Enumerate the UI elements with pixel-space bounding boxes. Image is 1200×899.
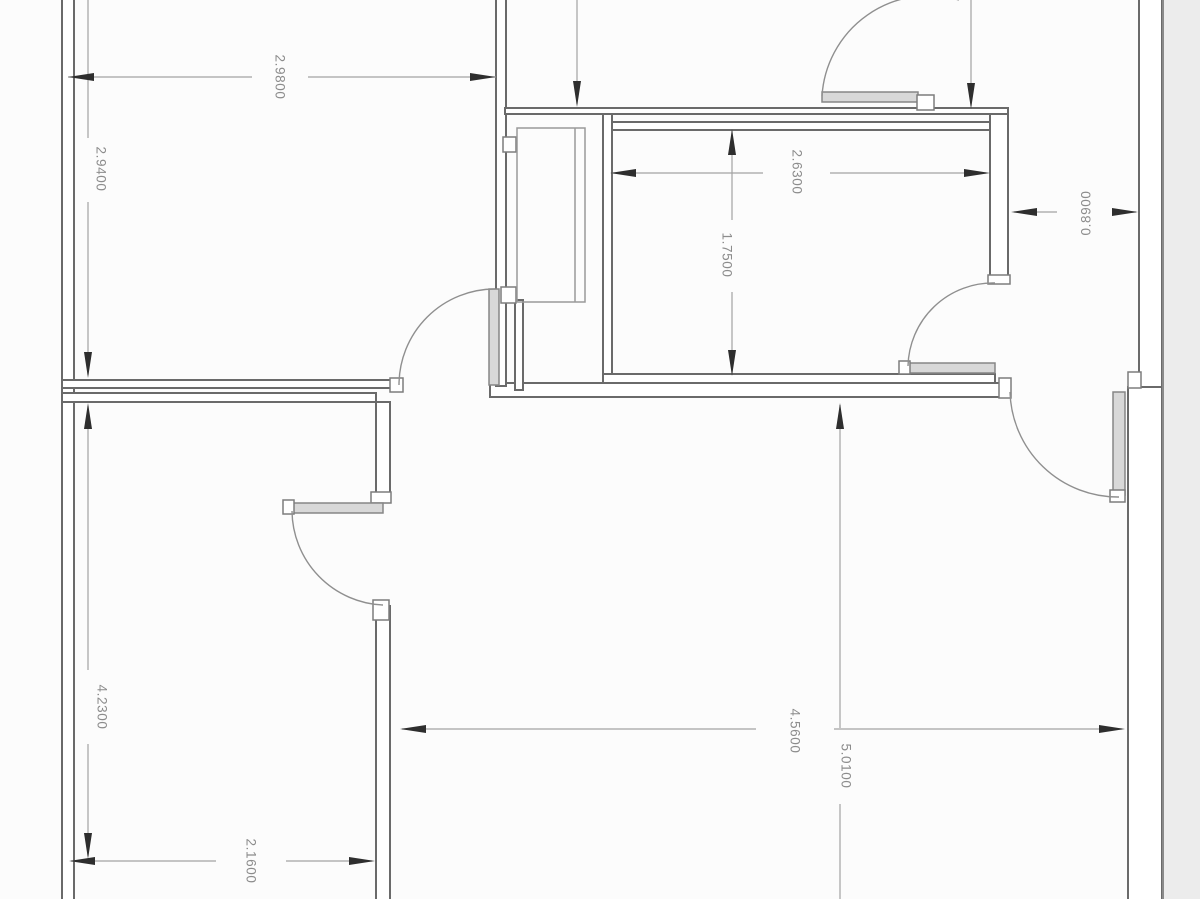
arrowhead	[967, 83, 975, 109]
jamb	[371, 492, 391, 503]
arrowhead	[610, 169, 636, 177]
arrowhead	[573, 81, 581, 107]
left-vertical-wall-upper	[376, 402, 390, 498]
dimension-label-bedroom-height: 1.7500	[720, 233, 735, 278]
jamb	[1128, 372, 1141, 388]
arrowhead	[1011, 208, 1037, 216]
door-lower-left-room	[283, 500, 383, 605]
dimension-label-living-width: 4.5600	[788, 709, 803, 754]
door-bedroom	[899, 283, 995, 374]
arrowhead	[349, 857, 375, 865]
door-swing-arc	[908, 283, 995, 366]
door-swing-arc	[1010, 392, 1119, 497]
door-tip-jamb	[1110, 490, 1125, 502]
door-swing-arc	[399, 289, 495, 385]
dimension-label-living-height: 5.0100	[839, 744, 854, 789]
jamb	[999, 378, 1011, 398]
door-leaf	[822, 92, 918, 102]
door-leaf	[908, 363, 995, 373]
bedroom-left-wall	[603, 114, 612, 383]
upper-room-bottom-wall	[62, 380, 397, 388]
jamb	[390, 378, 403, 392]
door-leaf	[1113, 392, 1125, 495]
lower-room-top-wall	[62, 393, 376, 402]
arrowhead	[470, 73, 496, 81]
floor-plan-drawing	[0, 0, 1200, 899]
door-leaf	[489, 289, 499, 385]
jamb	[501, 287, 516, 303]
closet-fixture	[517, 128, 585, 302]
arrowhead	[84, 833, 92, 859]
left-vertical-wall-lower	[376, 606, 390, 899]
arrowhead	[728, 350, 736, 376]
door-swing-arc	[822, 0, 959, 96]
page-margin	[1162, 0, 1200, 899]
dimension-label-bottom-width: 2.1600	[244, 839, 259, 884]
door-upper-left-room	[399, 289, 499, 385]
door-hinge-jamb	[917, 95, 934, 110]
dimension-label-bedroom-width: 2.6300	[790, 150, 805, 195]
door-swing-arc	[292, 511, 383, 605]
arrowhead	[84, 403, 92, 429]
dimension-label-top-width: 2.9800	[273, 55, 288, 100]
left-outer-wall	[62, 0, 74, 899]
closet-side-wall	[515, 300, 523, 390]
arrowhead	[964, 169, 990, 177]
arrowhead	[1112, 208, 1138, 216]
floor-plan-canvas: 2.9800 2.9400 2.6300 1.7500 0.8900 4.230…	[0, 0, 1200, 899]
arrowhead	[728, 129, 736, 155]
arrowhead	[84, 352, 92, 378]
jamb	[503, 137, 516, 152]
door-hall-right	[1010, 392, 1125, 502]
door-leaf	[287, 503, 383, 513]
dimension-label-right-offset: 0.8900	[1079, 191, 1094, 236]
door-top-right	[822, 0, 959, 110]
right-outer-wall-lower	[1128, 387, 1162, 899]
arrowhead	[400, 725, 426, 733]
bedroom-bottom-wall	[603, 374, 995, 383]
jamb	[373, 600, 389, 620]
interior-walls	[62, 0, 1010, 899]
arrowhead	[836, 403, 844, 429]
bedroom-top-inner-wall	[603, 122, 995, 130]
arrowhead	[1099, 725, 1125, 733]
hall-top-wall	[490, 383, 1010, 397]
dimension-label-lower-left-height: 4.2300	[95, 685, 110, 730]
dimension-label-upper-left-height: 2.9400	[94, 147, 109, 192]
bedroom-right-wall	[990, 114, 1008, 283]
